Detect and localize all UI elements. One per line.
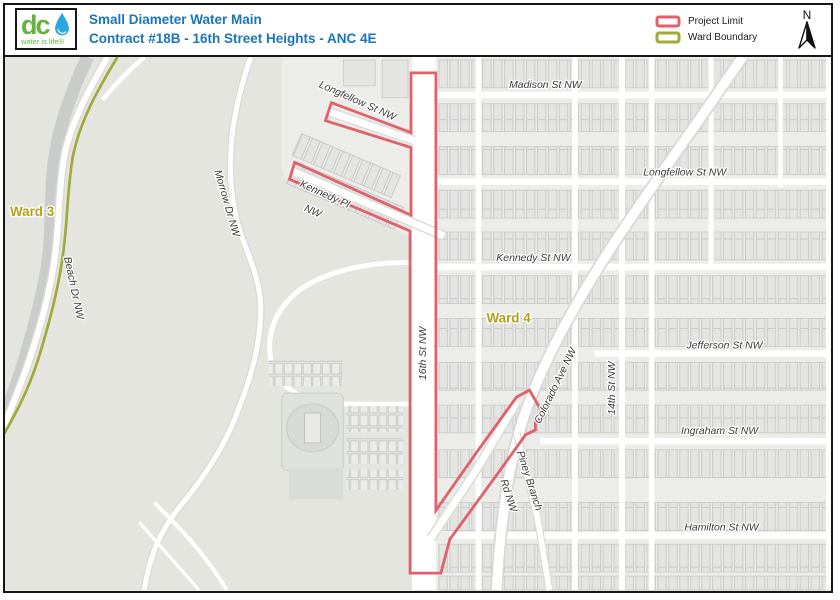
title-line-2: Contract #18B - 16th Street Heights - AN… (89, 29, 377, 48)
map-canvas: Madison St NW Longfellow St NW Kennedy S… (5, 57, 831, 591)
logo-text-dc: dc (21, 10, 49, 40)
north-label: N (803, 8, 812, 22)
water-drop-icon (52, 12, 72, 38)
longfellow-st-road (436, 178, 831, 184)
legend-row-project-limit: Project Limit (655, 13, 757, 29)
project-limit-swatch (655, 15, 681, 28)
madison-st-road (436, 92, 831, 98)
label-madison-st: Madison St NW (509, 80, 583, 91)
ward-boundary-swatch (655, 31, 681, 44)
ingraham-st-road (540, 438, 831, 444)
label-longfellow-st: Longfellow St NW (643, 167, 727, 178)
legend-label-ward-boundary: Ward Boundary (688, 32, 757, 43)
title-bar: dc water is life® Small Diameter Water M… (5, 5, 831, 57)
logo-tagline: water is life® (21, 37, 64, 46)
basemap: Madison St NW Longfellow St NW Kennedy S… (5, 57, 831, 591)
sixteenth-st-road (412, 57, 436, 590)
legend: Project Limit Ward Boundary (655, 13, 757, 45)
label-ingraham-st: Ingraham St NW (681, 426, 759, 437)
label-ward-3: Ward 3 (10, 204, 54, 219)
kennedy-st-road (436, 264, 831, 270)
dc-water-logo: dc water is life® (15, 8, 77, 50)
label-16th-st: 16th St NW (418, 326, 429, 380)
north-arrow: N (793, 6, 821, 53)
map-sheet: dc water is life® Small Diameter Water M… (3, 3, 833, 593)
label-14th-st: 14th St NW (607, 360, 618, 414)
legend-label-project-limit: Project Limit (688, 16, 743, 27)
label-hamilton-st: Hamilton St NW (684, 522, 759, 533)
title-line-1: Small Diameter Water Main (89, 10, 377, 29)
fourteenth-st-road (619, 57, 625, 590)
label-jefferson-st: Jefferson St NW (686, 340, 764, 351)
label-ward-4: Ward 4 (486, 311, 531, 326)
label-kennedy-st: Kennedy St NW (496, 253, 571, 264)
amphitheatre (282, 393, 344, 499)
map-title: Small Diameter Water Main Contract #18B … (89, 10, 377, 48)
legend-row-ward-boundary: Ward Boundary (655, 29, 757, 45)
